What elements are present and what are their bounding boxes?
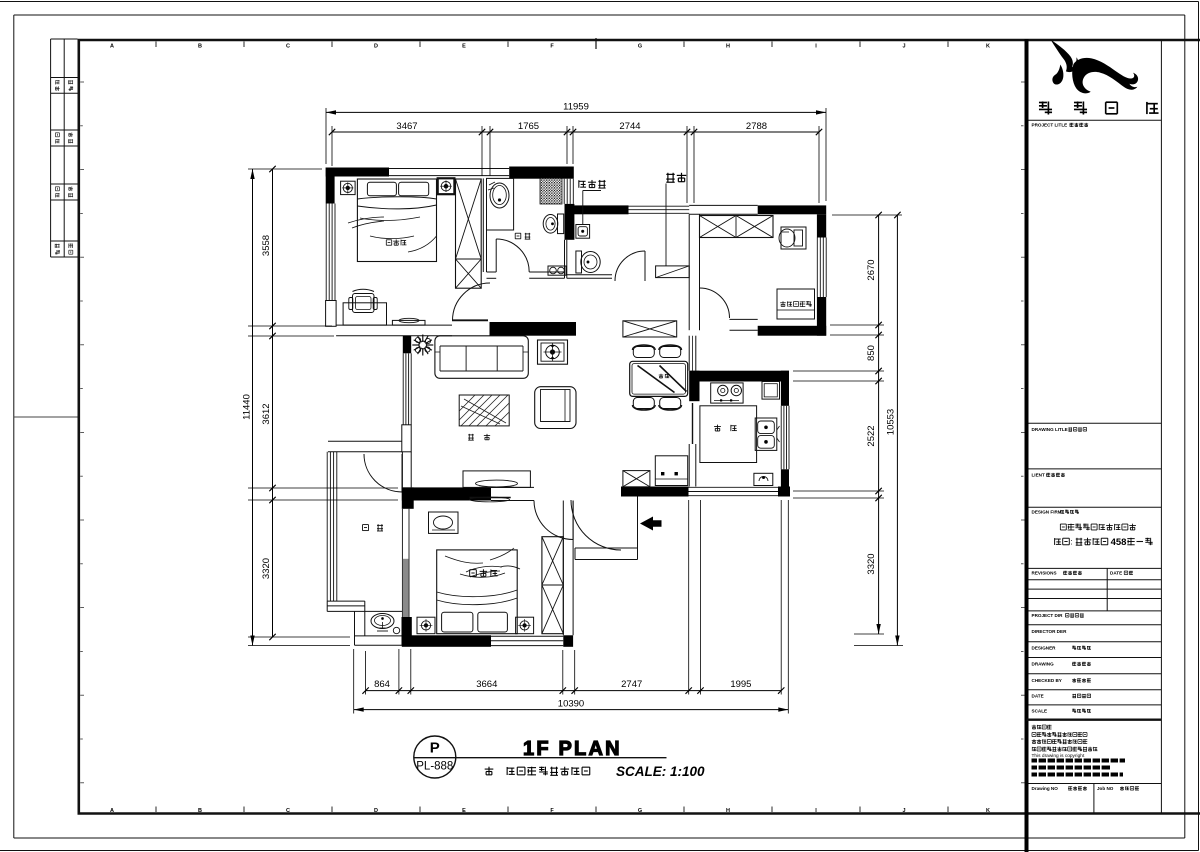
- svg-text:A: A: [110, 808, 114, 814]
- svg-text:B: B: [198, 808, 202, 814]
- svg-text:H: H: [726, 44, 730, 50]
- svg-text:Job NO: Job NO: [1097, 786, 1114, 791]
- svg-text:DATE: DATE: [1110, 571, 1122, 576]
- svg-text:DIRECTOR DER: DIRECTOR DER: [1032, 629, 1068, 634]
- svg-text:A: A: [110, 44, 114, 50]
- svg-text:11440: 11440: [242, 394, 253, 420]
- svg-text:DATE: DATE: [1032, 694, 1044, 699]
- svg-text:2788: 2788: [746, 121, 767, 132]
- svg-text::: :: [1070, 538, 1072, 547]
- svg-text:LIENT: LIENT: [1032, 473, 1045, 478]
- svg-text:K: K: [986, 808, 990, 814]
- svg-text:10553: 10553: [886, 409, 897, 435]
- svg-text:3558: 3558: [261, 235, 272, 256]
- svg-text:E: E: [462, 808, 466, 814]
- svg-text:G: G: [638, 808, 642, 814]
- svg-text:Drawing NO: Drawing NO: [1032, 786, 1059, 791]
- svg-text:DESIGNER: DESIGNER: [1032, 646, 1057, 651]
- svg-text:3612: 3612: [261, 403, 272, 424]
- svg-text:This drawing is copyright: This drawing is copyright: [1032, 753, 1085, 759]
- svg-text:REVISIONS: REVISIONS: [1032, 571, 1057, 576]
- svg-text:G: G: [638, 44, 642, 50]
- svg-text:3320: 3320: [261, 558, 272, 579]
- svg-text:C: C: [286, 44, 290, 50]
- svg-text:H: H: [726, 808, 730, 814]
- svg-text:11959: 11959: [563, 102, 589, 113]
- svg-text:J: J: [902, 44, 905, 50]
- svg-text:DRAWING LITLE: DRAWING LITLE: [1032, 427, 1068, 432]
- svg-text:2670: 2670: [866, 259, 877, 280]
- svg-text:CHECKED BY: CHECKED BY: [1032, 678, 1062, 683]
- svg-text:E: E: [462, 44, 466, 50]
- svg-text:458: 458: [1111, 537, 1127, 548]
- svg-text:DRAWING: DRAWING: [1032, 662, 1055, 667]
- svg-text:PROJECT LITLE: PROJECT LITLE: [1032, 123, 1068, 128]
- svg-text:SCALE: 1:100: SCALE: 1:100: [616, 764, 705, 779]
- svg-text:B: B: [198, 44, 202, 50]
- svg-text:10390: 10390: [558, 699, 584, 710]
- svg-text:DESIGN FIRM: DESIGN FIRM: [1032, 510, 1062, 515]
- svg-text:P: P: [430, 740, 440, 757]
- svg-text:1995: 1995: [730, 679, 751, 690]
- svg-text:1765: 1765: [518, 121, 539, 132]
- svg-text:2522: 2522: [866, 425, 877, 446]
- svg-text:3467: 3467: [396, 121, 417, 132]
- svg-text:850: 850: [866, 345, 877, 361]
- svg-text:2744: 2744: [619, 121, 640, 132]
- svg-text:K: K: [986, 44, 990, 50]
- svg-text:D: D: [374, 808, 378, 814]
- svg-text:C: C: [286, 808, 290, 814]
- svg-text:3320: 3320: [866, 553, 877, 574]
- svg-text:2747: 2747: [621, 679, 642, 690]
- svg-text:864: 864: [374, 679, 390, 690]
- svg-text:SCALE: SCALE: [1032, 709, 1048, 714]
- svg-text:J: J: [902, 808, 905, 814]
- svg-text:D: D: [374, 44, 378, 50]
- svg-text:PROJECT DIR: PROJECT DIR: [1032, 613, 1064, 618]
- svg-text:3664: 3664: [476, 679, 497, 690]
- svg-text:1F PLAN: 1F PLAN: [523, 738, 622, 760]
- svg-text:PL-888: PL-888: [416, 761, 453, 773]
